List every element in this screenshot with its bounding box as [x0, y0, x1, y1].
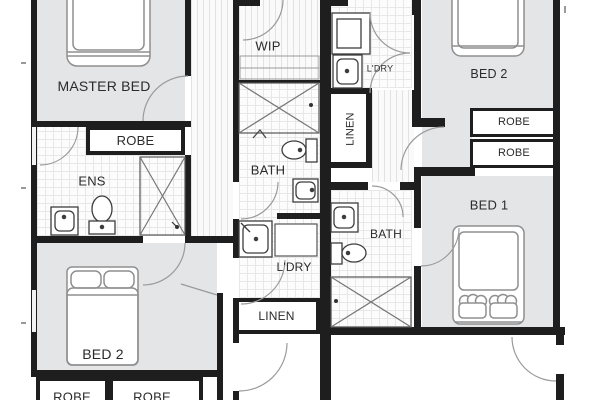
ldry-right-label: L'DRY [367, 65, 394, 74]
ens-toilet [89, 196, 115, 234]
closet-right-door-arc-1 [370, 13, 410, 53]
ens-door-arc [40, 127, 78, 165]
ldry-left-bench [275, 224, 317, 256]
master-bed-label: MASTER BED [57, 79, 150, 93]
bath-left-door-arc [241, 182, 278, 219]
bath-left-vanity [293, 179, 318, 202]
bed1-label: BED 1 [470, 199, 509, 212]
floor-plan: ROBE LINEN ROBE ROBE [0, 0, 609, 400]
bath-right-door-arc [372, 186, 403, 217]
bed1-bed [453, 226, 524, 324]
ens-label: ENS [78, 175, 105, 188]
bath-right-shower [331, 277, 411, 327]
robe-bottom-label-2: ROBE [133, 391, 171, 400]
bath-left-shower [239, 83, 319, 133]
bath-right-label: BATH [370, 228, 402, 240]
hall-left-door-arc [239, 343, 287, 391]
fixtures-layer [0, 0, 609, 400]
bath-right-vanity [331, 203, 358, 232]
bed2-right-bed [452, 0, 524, 56]
bath-left-spout [253, 130, 266, 138]
bath-left-toilet [282, 139, 317, 162]
master-bed [67, 0, 150, 66]
ldry-right-washer [332, 13, 370, 54]
bath-left-label: BATH [251, 164, 286, 177]
robe-bottom-label-1: ROBE [53, 391, 91, 400]
linen-right-label: LINEN [346, 112, 357, 145]
ens-vanity [51, 207, 78, 235]
wip-shelf [240, 56, 319, 79]
ldry-left-sink [239, 221, 272, 257]
bath-right-toilet [331, 243, 366, 264]
wip-door-arc [243, 0, 283, 40]
bed2-left-door-arc [143, 243, 185, 285]
ens-shower [140, 157, 185, 235]
bed2-right-door-arc [401, 127, 444, 170]
entry-right-door-arc [512, 337, 556, 381]
bed2-left-label: BED 2 [82, 347, 123, 361]
bed2-left-door-leaf [181, 284, 217, 295]
wip-label: WIP [255, 40, 280, 53]
ldry-right-sink [333, 55, 362, 88]
bed2-right-label: BED 2 [470, 68, 507, 81]
ldry-left-label: L'DRY [276, 261, 311, 273]
